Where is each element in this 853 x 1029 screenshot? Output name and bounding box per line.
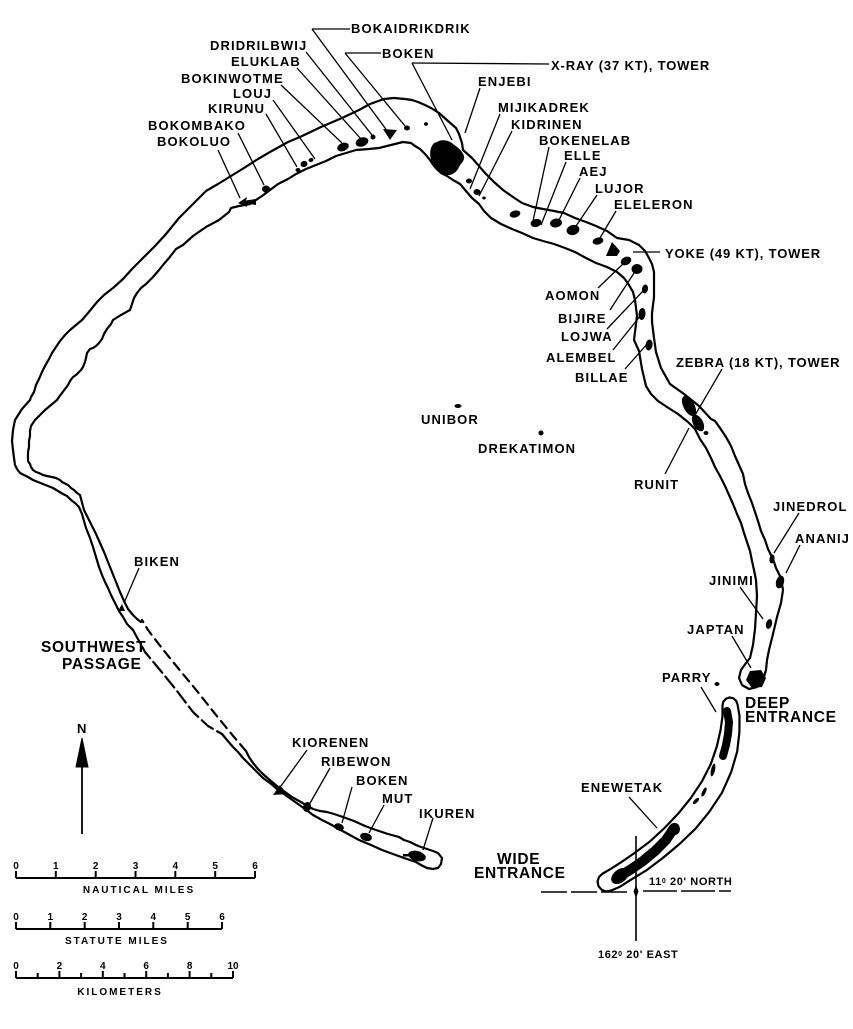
svg-text:IKUREN: IKUREN <box>419 806 475 821</box>
svg-text:BOKOMBAKO: BOKOMBAKO <box>148 118 246 133</box>
svg-text:4: 4 <box>100 961 106 972</box>
svg-text:BOKENELAB: BOKENELAB <box>539 133 631 148</box>
svg-text:1620 20' EAST: 1620 20' EAST <box>598 949 678 961</box>
svg-text:10: 10 <box>227 961 239 972</box>
svg-text:1: 1 <box>53 861 59 872</box>
svg-text:RUNIT: RUNIT <box>634 477 679 492</box>
svg-text:6: 6 <box>252 861 258 872</box>
svg-text:KIORENEN: KIORENEN <box>292 735 369 750</box>
svg-text:JINEDROL: JINEDROL <box>773 499 848 514</box>
svg-text:AEJ: AEJ <box>579 164 608 179</box>
svg-text:ANANIJ: ANANIJ <box>795 531 850 546</box>
svg-text:2: 2 <box>82 912 88 923</box>
svg-text:PARRY: PARRY <box>662 670 712 685</box>
svg-text:AOMON: AOMON <box>545 288 600 303</box>
svg-text:KILOMETERS: KILOMETERS <box>77 987 163 998</box>
svg-text:0: 0 <box>13 861 19 872</box>
svg-text:0: 0 <box>13 912 19 923</box>
svg-text:JAPTAN: JAPTAN <box>687 622 745 637</box>
svg-text:DRIDRILBWIJ: DRIDRILBWIJ <box>210 38 307 53</box>
svg-text:STATUTE MILES: STATUTE MILES <box>65 936 169 947</box>
svg-text:LUJOR: LUJOR <box>595 181 645 196</box>
svg-text:ENJEBI: ENJEBI <box>478 74 532 89</box>
svg-text:3: 3 <box>116 912 122 923</box>
svg-text:ELELERON: ELELERON <box>614 197 694 212</box>
svg-text:0: 0 <box>13 961 19 972</box>
svg-text:SOUTHWEST: SOUTHWEST <box>41 639 146 656</box>
svg-text:BIKEN: BIKEN <box>134 554 180 569</box>
svg-text:6: 6 <box>143 961 149 972</box>
svg-text:KIDRINEN: KIDRINEN <box>511 117 583 132</box>
svg-text:DREKATIMON: DREKATIMON <box>478 441 576 456</box>
svg-text:MIJIKADREK: MIJIKADREK <box>498 100 590 115</box>
svg-text:110 20' NORTH: 110 20' NORTH <box>649 876 732 888</box>
svg-text:BILLAE: BILLAE <box>575 370 629 385</box>
svg-text:ALEMBEL: ALEMBEL <box>546 350 617 365</box>
svg-text:BIJIRE: BIJIRE <box>558 311 607 326</box>
svg-text:5: 5 <box>212 861 218 872</box>
svg-text:3: 3 <box>133 861 139 872</box>
svg-text:ELUKLAB: ELUKLAB <box>231 54 301 69</box>
svg-text:1: 1 <box>48 912 54 923</box>
svg-text:NAUTICAL MILES: NAUTICAL MILES <box>83 885 195 896</box>
svg-text:5: 5 <box>185 912 191 923</box>
svg-text:6: 6 <box>219 912 225 923</box>
svg-text:4: 4 <box>173 861 179 872</box>
svg-text:UNIBOR: UNIBOR <box>421 412 479 427</box>
svg-text:ENEWETAK: ENEWETAK <box>581 780 663 795</box>
svg-text:MUT: MUT <box>382 791 413 806</box>
svg-text:YOKE (49 KT), TOWER: YOKE (49 KT), TOWER <box>665 246 821 261</box>
svg-text:LOJWA: LOJWA <box>561 329 613 344</box>
svg-text:BOKOLUO: BOKOLUO <box>157 134 231 149</box>
svg-text:8: 8 <box>187 961 193 972</box>
svg-text:N: N <box>77 721 86 736</box>
svg-text:2: 2 <box>93 861 99 872</box>
svg-text:ZEBRA (18 KT), TOWER: ZEBRA (18 KT), TOWER <box>676 355 840 370</box>
svg-text:PASSAGE: PASSAGE <box>62 656 142 673</box>
svg-text:BOKEN: BOKEN <box>382 46 434 61</box>
svg-text:4: 4 <box>151 912 157 923</box>
svg-text:X-RAY (37 KT), TOWER: X-RAY (37 KT), TOWER <box>551 58 710 73</box>
svg-text:ENTRANCE: ENTRANCE <box>474 865 566 882</box>
svg-text:RIBEWON: RIBEWON <box>321 754 392 769</box>
svg-text:LOUJ: LOUJ <box>233 86 272 101</box>
svg-text:BOKAIDRIKDRIK: BOKAIDRIKDRIK <box>351 21 471 36</box>
svg-text:ELLE: ELLE <box>564 148 602 163</box>
svg-text:ENTRANCE: ENTRANCE <box>745 709 837 726</box>
svg-text:BOKEN: BOKEN <box>356 773 408 788</box>
svg-text:BOKINWOTME: BOKINWOTME <box>181 71 284 86</box>
svg-text:JINIMI: JINIMI <box>709 573 754 588</box>
svg-text:KIRUNU: KIRUNU <box>208 101 265 116</box>
svg-text:2: 2 <box>57 961 63 972</box>
